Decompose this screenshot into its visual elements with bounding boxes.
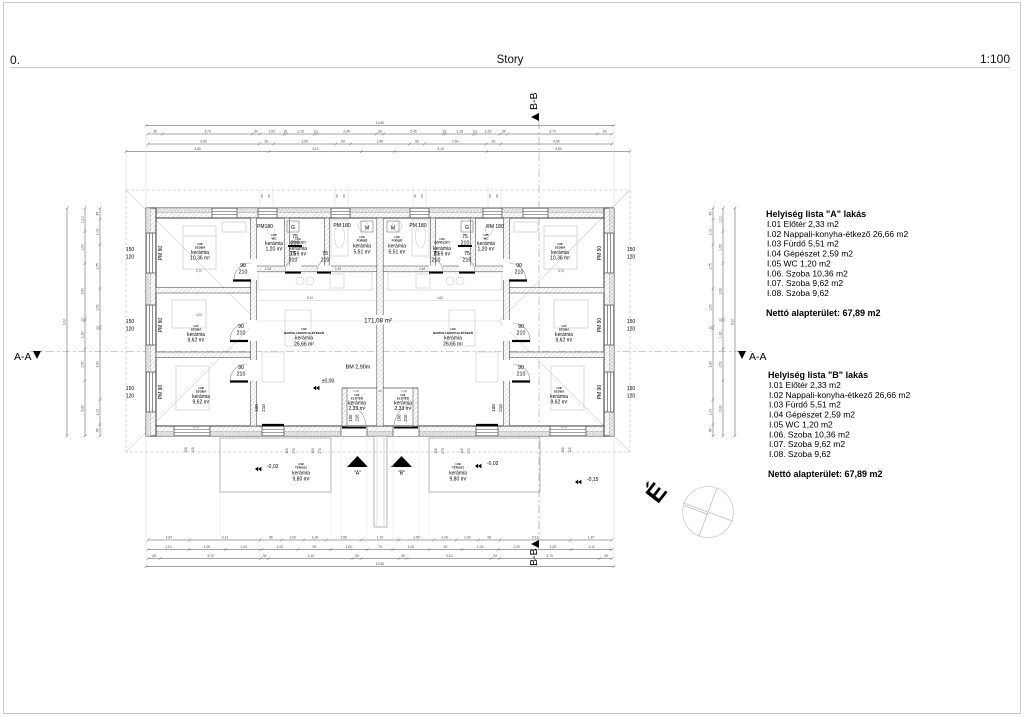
svg-text:1,12: 1,12 bbox=[165, 545, 172, 549]
svg-text:210: 210 bbox=[261, 404, 266, 412]
svg-text:SZOBA: SZOBA bbox=[554, 390, 565, 394]
svg-text:1,00: 1,00 bbox=[464, 535, 471, 539]
svg-text:150: 150 bbox=[126, 386, 135, 392]
svg-text:120: 120 bbox=[627, 327, 636, 333]
svg-text:1,87: 1,87 bbox=[166, 535, 173, 539]
svg-text:150: 150 bbox=[561, 447, 565, 453]
svg-text:G: G bbox=[291, 225, 295, 231]
svg-text:150: 150 bbox=[126, 247, 135, 253]
svg-text:A-A: A-A bbox=[749, 351, 767, 363]
svg-text:I.08. Szoba 9,62: I.08. Szoba 9,62 bbox=[767, 288, 829, 298]
svg-text:"B": "B" bbox=[398, 471, 405, 477]
svg-text:3,70: 3,70 bbox=[561, 425, 567, 429]
svg-text:Nettó alapterület: 67,89 m2: Nettó alapterület: 67,89 m2 bbox=[768, 469, 883, 479]
svg-text:FÜRDÕ: FÜRDÕ bbox=[392, 238, 403, 243]
svg-text:SZOBA: SZOBA bbox=[196, 390, 207, 394]
svg-text:3,70: 3,70 bbox=[207, 554, 214, 558]
svg-text:10,36 m²: 10,36 m² bbox=[190, 256, 210, 262]
svg-text:1,12: 1,12 bbox=[588, 545, 595, 549]
svg-text:4,60: 4,60 bbox=[437, 296, 443, 300]
svg-text:10: 10 bbox=[718, 318, 722, 322]
svg-text:1,50: 1,50 bbox=[708, 304, 712, 311]
svg-text:210: 210 bbox=[463, 257, 472, 263]
svg-text:1,00: 1,00 bbox=[95, 409, 99, 416]
svg-text:100: 100 bbox=[254, 404, 259, 412]
svg-text:I.05 WC 1,20 m2: I.05 WC 1,20 m2 bbox=[767, 258, 831, 268]
svg-text:190: 190 bbox=[460, 448, 464, 454]
svg-text:10: 10 bbox=[283, 129, 287, 133]
svg-text:90: 90 bbox=[238, 324, 244, 330]
svg-text:I.01 Előtér 2,33 m2: I.01 Előtér 2,33 m2 bbox=[769, 380, 841, 390]
svg-text:I.03 Fürdő 5,51 m2: I.03 Fürdő 5,51 m2 bbox=[769, 400, 841, 410]
svg-text:A-A: A-A bbox=[14, 351, 32, 363]
svg-text:G: G bbox=[465, 225, 469, 231]
svg-text:3,00: 3,00 bbox=[196, 313, 202, 317]
svg-text:75: 75 bbox=[322, 251, 328, 257]
svg-text:WC: WC bbox=[272, 237, 278, 241]
svg-text:1,50: 1,50 bbox=[718, 244, 722, 251]
svg-text:120: 120 bbox=[126, 327, 135, 333]
svg-text:PM 90: PM 90 bbox=[597, 385, 603, 400]
svg-text:210: 210 bbox=[289, 257, 298, 263]
svg-text:60: 60 bbox=[335, 194, 339, 198]
svg-text:1,00: 1,00 bbox=[408, 545, 415, 549]
svg-text:2,80: 2,80 bbox=[95, 361, 99, 368]
svg-text:WC: WC bbox=[484, 237, 490, 241]
svg-text:3,70: 3,70 bbox=[549, 129, 556, 133]
svg-text:90: 90 bbox=[444, 545, 448, 549]
svg-text:1,10: 1,10 bbox=[80, 216, 84, 223]
svg-text:2,45: 2,45 bbox=[343, 129, 350, 133]
svg-text:3,70: 3,70 bbox=[204, 129, 211, 133]
svg-text:60: 60 bbox=[492, 139, 496, 143]
svg-text:150: 150 bbox=[627, 319, 636, 325]
svg-text:4,50: 4,50 bbox=[553, 139, 560, 143]
svg-text:9,80 m²: 9,80 m² bbox=[293, 477, 310, 483]
svg-text:Story: Story bbox=[497, 54, 524, 66]
svg-text:10,36 m²: 10,36 m² bbox=[550, 256, 570, 262]
svg-text:1,50: 1,50 bbox=[80, 244, 84, 251]
svg-text:TERASZ: TERASZ bbox=[452, 466, 464, 470]
svg-text:2,80: 2,80 bbox=[708, 361, 712, 368]
svg-text:210: 210 bbox=[517, 330, 526, 336]
svg-text:I.01 Előtér 2,33 m2: I.01 Előtér 2,33 m2 bbox=[767, 219, 839, 229]
svg-text:90: 90 bbox=[518, 324, 524, 330]
svg-text:BM 2,90m: BM 2,90m bbox=[346, 365, 371, 371]
svg-text:I.06. Szoba 10,36 m2: I.06. Szoba 10,36 m2 bbox=[767, 268, 848, 278]
svg-text:60: 60 bbox=[495, 194, 499, 198]
svg-text:2,50: 2,50 bbox=[301, 139, 308, 143]
svg-text:1,00: 1,00 bbox=[513, 545, 520, 549]
svg-text:60: 60 bbox=[415, 139, 419, 143]
svg-text:Helyiség lista "A" lakás: Helyiség lista "A" lakás bbox=[766, 209, 866, 219]
svg-text:GÉPÉSZET: GÉPÉSZET bbox=[434, 240, 450, 245]
svg-text:1,75: 1,75 bbox=[708, 263, 712, 270]
svg-text:4,80: 4,80 bbox=[555, 147, 562, 151]
svg-text:NAPPALI-KONYHA-ÉTKEZÕ: NAPPALI-KONYHA-ÉTKEZÕ bbox=[284, 330, 325, 335]
svg-text:120: 120 bbox=[126, 394, 135, 400]
svg-text:90: 90 bbox=[518, 365, 524, 371]
svg-text:45: 45 bbox=[95, 428, 99, 432]
svg-text:3,10: 3,10 bbox=[446, 554, 453, 558]
svg-text:M: M bbox=[391, 226, 395, 232]
svg-text:120: 120 bbox=[627, 255, 636, 261]
svg-text:1,00: 1,00 bbox=[289, 535, 296, 539]
svg-text:60: 60 bbox=[265, 139, 269, 143]
svg-text:190: 190 bbox=[434, 448, 438, 454]
svg-text:210: 210 bbox=[239, 269, 248, 275]
svg-text:1,70: 1,70 bbox=[377, 535, 384, 539]
svg-text:1,00: 1,00 bbox=[550, 545, 557, 549]
svg-text:PM 90: PM 90 bbox=[597, 318, 603, 333]
svg-text:70: 70 bbox=[378, 545, 382, 549]
svg-text:30: 30 bbox=[502, 129, 506, 133]
svg-text:10: 10 bbox=[442, 129, 446, 133]
svg-text:210: 210 bbox=[355, 414, 360, 422]
svg-text:1,50: 1,50 bbox=[95, 304, 99, 311]
svg-text:60: 60 bbox=[420, 194, 424, 198]
svg-text:I.07. Szoba 9,62 m2: I.07. Szoba 9,62 m2 bbox=[767, 278, 843, 288]
svg-text:9,10: 9,10 bbox=[730, 319, 734, 326]
svg-text:PM 90: PM 90 bbox=[158, 385, 164, 400]
svg-text:1:100: 1:100 bbox=[980, 52, 1010, 66]
svg-text:NAPPALI-KONYHA-ÉTKEZÕ: NAPPALI-KONYHA-ÉTKEZÕ bbox=[433, 330, 474, 335]
svg-text:90: 90 bbox=[238, 365, 244, 371]
svg-text:120: 120 bbox=[126, 255, 135, 261]
svg-text:2,50: 2,50 bbox=[452, 139, 459, 143]
svg-text:1,00: 1,00 bbox=[485, 129, 492, 133]
svg-text:190: 190 bbox=[285, 448, 289, 454]
svg-text:13,60: 13,60 bbox=[376, 121, 385, 125]
svg-text:2,60: 2,60 bbox=[80, 405, 84, 412]
svg-text:2,60: 2,60 bbox=[80, 288, 84, 295]
svg-text:120: 120 bbox=[191, 447, 195, 453]
svg-text:kerámia: kerámia bbox=[292, 470, 310, 476]
svg-text:90: 90 bbox=[240, 263, 246, 269]
svg-text:-0,02: -0,02 bbox=[487, 461, 499, 467]
svg-text:210: 210 bbox=[515, 269, 524, 275]
svg-text:3,70: 3,70 bbox=[558, 269, 564, 273]
svg-text:FÜRDÕ: FÜRDÕ bbox=[357, 238, 368, 243]
svg-text:1,87: 1,87 bbox=[588, 535, 595, 539]
svg-text:4,50: 4,50 bbox=[200, 139, 207, 143]
svg-text:45: 45 bbox=[604, 554, 608, 558]
svg-text:1,00: 1,00 bbox=[346, 545, 353, 549]
svg-text:1,00: 1,00 bbox=[277, 545, 284, 549]
svg-text:I.04 Gépészet 2,59 m2: I.04 Gépészet 2,59 m2 bbox=[769, 410, 855, 420]
svg-text:210: 210 bbox=[403, 414, 408, 422]
svg-text:9,62 m²: 9,62 m² bbox=[188, 338, 205, 344]
svg-text:1,00: 1,00 bbox=[265, 267, 271, 271]
svg-text:1,00: 1,00 bbox=[708, 409, 712, 416]
svg-text:2,60: 2,60 bbox=[718, 405, 722, 412]
svg-text:PM 180: PM 180 bbox=[333, 223, 350, 229]
svg-text:30: 30 bbox=[263, 554, 267, 558]
svg-text:60: 60 bbox=[267, 194, 271, 198]
svg-text:M: M bbox=[365, 226, 369, 232]
svg-text:10: 10 bbox=[314, 129, 318, 133]
svg-text:30: 30 bbox=[493, 554, 497, 558]
svg-text:270: 270 bbox=[441, 448, 445, 454]
svg-text:B-B: B-B bbox=[528, 548, 540, 566]
svg-text:9,62 m²: 9,62 m² bbox=[556, 338, 573, 344]
svg-text:PM 90: PM 90 bbox=[597, 246, 603, 261]
svg-text:60: 60 bbox=[413, 194, 417, 198]
svg-text:13,60: 13,60 bbox=[376, 562, 385, 566]
svg-text:30: 30 bbox=[355, 554, 359, 558]
svg-text:2,40: 2,40 bbox=[377, 139, 384, 143]
svg-text:1,15: 1,15 bbox=[297, 129, 304, 133]
svg-text:10: 10 bbox=[80, 318, 84, 322]
svg-text:10: 10 bbox=[473, 129, 477, 133]
svg-text:1,30: 1,30 bbox=[718, 331, 722, 338]
svg-text:1,00: 1,00 bbox=[708, 229, 712, 236]
svg-text:75: 75 bbox=[462, 234, 468, 240]
svg-text:1,20 m²: 1,20 m² bbox=[478, 247, 495, 253]
svg-text:9,10: 9,10 bbox=[62, 319, 66, 326]
svg-text:SZOBA: SZOBA bbox=[195, 246, 206, 250]
svg-text:26,66 m²: 26,66 m² bbox=[443, 342, 463, 348]
svg-text:150: 150 bbox=[126, 319, 135, 325]
svg-text:3,10: 3,10 bbox=[437, 147, 444, 151]
svg-text:150: 150 bbox=[627, 386, 636, 392]
svg-text:I.07. Szoba 9,62 m2: I.07. Szoba 9,62 m2 bbox=[769, 439, 845, 449]
svg-text:30: 30 bbox=[401, 554, 405, 558]
svg-text:1,20 m²: 1,20 m² bbox=[266, 247, 283, 253]
svg-text:SZOBA: SZOBA bbox=[559, 328, 570, 332]
svg-text:1,55: 1,55 bbox=[340, 535, 347, 539]
svg-text:Nettó alapterület: 67,89 m2: Nettó alapterület: 67,89 m2 bbox=[766, 308, 881, 318]
svg-text:1,00: 1,00 bbox=[312, 535, 319, 539]
svg-text:kerámia: kerámia bbox=[449, 470, 467, 476]
svg-text:2,45: 2,45 bbox=[335, 267, 341, 271]
svg-text:45: 45 bbox=[708, 428, 712, 432]
svg-text:60: 60 bbox=[153, 129, 157, 133]
svg-text:2,59 m²: 2,59 m² bbox=[290, 251, 307, 257]
svg-text:60: 60 bbox=[260, 194, 264, 198]
svg-text:210: 210 bbox=[237, 330, 246, 336]
svg-text:60: 60 bbox=[341, 139, 345, 143]
svg-text:100: 100 bbox=[348, 414, 353, 422]
svg-text:I.04 Gépészet 2,59 m2: I.04 Gépészet 2,59 m2 bbox=[767, 249, 853, 259]
svg-text:3,13: 3,13 bbox=[222, 535, 229, 539]
svg-text:B-B: B-B bbox=[528, 92, 540, 110]
svg-text:60: 60 bbox=[603, 129, 607, 133]
svg-text:150: 150 bbox=[627, 247, 636, 253]
svg-text:I.03 Fürdő 5,51 m2: I.03 Fürdő 5,51 m2 bbox=[767, 239, 839, 249]
svg-text:96: 96 bbox=[487, 535, 491, 539]
svg-text:3,10: 3,10 bbox=[312, 147, 319, 151]
svg-text:I.02 Nappali-konyha-étkező 26,: I.02 Nappali-konyha-étkező 26,66 m2 bbox=[769, 390, 911, 400]
svg-text:9,62 m²: 9,62 m² bbox=[193, 400, 210, 406]
svg-text:210: 210 bbox=[517, 371, 526, 377]
svg-text:"A": "A" bbox=[354, 471, 361, 477]
svg-text:270: 270 bbox=[467, 448, 471, 454]
svg-text:3,13: 3,13 bbox=[532, 535, 539, 539]
svg-text:9,80 m²: 9,80 m² bbox=[450, 477, 467, 483]
svg-text:I.06. Szoba 10,36 m2: I.06. Szoba 10,36 m2 bbox=[769, 429, 850, 439]
svg-text:100: 100 bbox=[491, 404, 496, 412]
svg-text:45: 45 bbox=[95, 212, 99, 216]
svg-text:SZOBA: SZOBA bbox=[555, 246, 566, 250]
svg-text:1,00: 1,00 bbox=[95, 229, 99, 236]
svg-text:30: 30 bbox=[254, 129, 258, 133]
svg-text:I.05 WC 1,20 m2: I.05 WC 1,20 m2 bbox=[769, 419, 833, 429]
svg-text:270: 270 bbox=[292, 448, 296, 454]
svg-text:PM 90: PM 90 bbox=[158, 246, 164, 261]
svg-text:GÉPÉSZET: GÉPÉSZET bbox=[290, 240, 306, 245]
svg-text:SZOBA: SZOBA bbox=[191, 328, 202, 332]
svg-text:1,00: 1,00 bbox=[477, 545, 484, 549]
svg-text:PM 180: PM 180 bbox=[409, 223, 426, 229]
svg-text:60: 60 bbox=[488, 194, 492, 198]
svg-text:TERASZ: TERASZ bbox=[295, 466, 307, 470]
svg-text:I.08. Szoba 9,62: I.08. Szoba 9,62 bbox=[769, 449, 831, 459]
svg-text:1,10: 1,10 bbox=[718, 216, 722, 223]
svg-text:150: 150 bbox=[184, 447, 188, 453]
svg-text:9,62 m²: 9,62 m² bbox=[551, 400, 568, 406]
svg-text:2,33 m²: 2,33 m² bbox=[395, 406, 412, 412]
svg-text:90: 90 bbox=[516, 263, 522, 269]
svg-text:2,45: 2,45 bbox=[419, 267, 425, 271]
svg-text:120: 120 bbox=[627, 394, 636, 400]
svg-text:I.02 Nappali-konyha-étkező 26,: I.02 Nappali-konyha-étkező 26,66 m2 bbox=[767, 229, 909, 239]
svg-text:5,10: 5,10 bbox=[307, 296, 313, 300]
svg-text:0.: 0. bbox=[10, 53, 20, 67]
svg-text:3,70: 3,70 bbox=[193, 425, 199, 429]
svg-text:1,00: 1,00 bbox=[269, 129, 276, 133]
svg-text:210: 210 bbox=[237, 371, 246, 377]
svg-text:2,60: 2,60 bbox=[718, 288, 722, 295]
svg-text:RM 180: RM 180 bbox=[486, 224, 504, 230]
svg-text:1,00: 1,00 bbox=[240, 545, 247, 549]
svg-text:2,33 m²: 2,33 m² bbox=[349, 406, 366, 412]
svg-text:-0,15: -0,15 bbox=[587, 477, 599, 483]
svg-text:30: 30 bbox=[378, 389, 382, 393]
svg-text:10: 10 bbox=[95, 326, 99, 330]
svg-text:26,66 m²: 26,66 m² bbox=[294, 342, 314, 348]
svg-text:171,08 m²: 171,08 m² bbox=[364, 318, 392, 325]
svg-text:5,51 m²: 5,51 m² bbox=[354, 249, 371, 255]
svg-text:75: 75 bbox=[464, 251, 470, 257]
svg-text:3,70: 3,70 bbox=[196, 269, 202, 273]
svg-text:1,30: 1,30 bbox=[80, 331, 84, 338]
svg-text:10: 10 bbox=[708, 326, 712, 330]
svg-text:45: 45 bbox=[152, 554, 156, 558]
svg-text:45: 45 bbox=[708, 212, 712, 216]
svg-text:4,80: 4,80 bbox=[194, 147, 201, 151]
svg-text:30: 30 bbox=[378, 129, 382, 133]
svg-text:2,59 m²: 2,59 m² bbox=[434, 251, 451, 257]
svg-text:1,75: 1,75 bbox=[95, 263, 99, 270]
svg-text:PM180: PM180 bbox=[257, 224, 273, 230]
svg-text:270: 270 bbox=[318, 448, 322, 454]
svg-text:90: 90 bbox=[313, 545, 317, 549]
svg-text:1,55: 1,55 bbox=[413, 535, 420, 539]
svg-text:-0,02: -0,02 bbox=[267, 464, 279, 470]
svg-text:Helyiség lista "B" lakás: Helyiség lista "B" lakás bbox=[768, 370, 868, 380]
svg-text:1,50: 1,50 bbox=[80, 361, 84, 368]
svg-text:1,00: 1,00 bbox=[442, 535, 449, 539]
svg-text:5,51 m²: 5,51 m² bbox=[389, 249, 406, 255]
svg-text:96: 96 bbox=[269, 535, 273, 539]
svg-text:1,00: 1,00 bbox=[204, 545, 211, 549]
svg-text:60: 60 bbox=[342, 194, 346, 198]
svg-text:2,45: 2,45 bbox=[410, 129, 417, 133]
svg-text:190: 190 bbox=[311, 448, 315, 454]
svg-text:1,15: 1,15 bbox=[456, 129, 463, 133]
svg-text:1,50: 1,50 bbox=[718, 361, 722, 368]
svg-text:120: 120 bbox=[568, 447, 572, 453]
svg-text:100: 100 bbox=[397, 414, 402, 422]
svg-text:PM 90: PM 90 bbox=[158, 318, 164, 333]
svg-text:210: 210 bbox=[498, 404, 503, 412]
svg-text:3,10: 3,10 bbox=[308, 554, 315, 558]
svg-text:±0,00: ±0,00 bbox=[322, 379, 335, 385]
svg-text:3,70: 3,70 bbox=[546, 554, 553, 558]
